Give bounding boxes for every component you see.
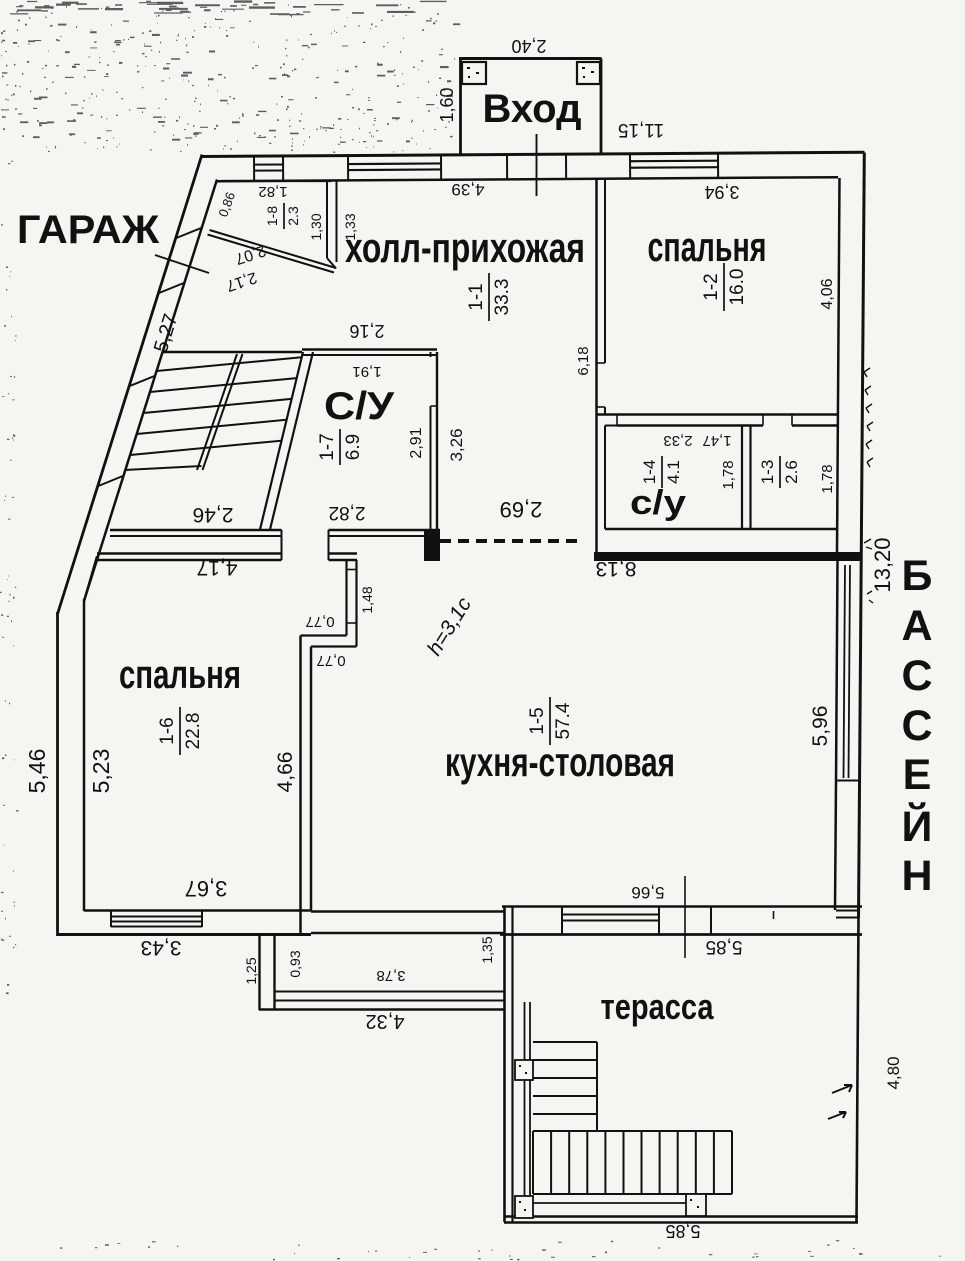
svg-text:С: С (901, 702, 932, 750)
svg-text:2,33: 2,33 (663, 432, 692, 449)
svg-text:4,32: 4,32 (366, 1010, 405, 1032)
svg-text:3,67: 3,67 (185, 876, 228, 901)
svg-text:1,48: 1,48 (359, 586, 375, 613)
svg-text:6,18: 6,18 (575, 346, 592, 375)
svg-text:5,23: 5,23 (88, 749, 114, 794)
svg-text:А: А (901, 602, 932, 650)
svg-text:спальня: спальня (119, 653, 241, 697)
svg-text:1-6: 1-6 (157, 717, 178, 744)
svg-text:1,91: 1,91 (352, 363, 381, 380)
svg-text:6.9: 6.9 (343, 434, 364, 460)
svg-text:11,15: 11,15 (618, 119, 664, 140)
svg-text:Й: Й (902, 802, 933, 851)
svg-text:Е: Е (903, 751, 932, 799)
svg-text:1,25: 1,25 (243, 957, 259, 984)
svg-text:Вход: Вход (483, 87, 582, 131)
svg-text:2,82: 2,82 (329, 502, 366, 523)
svg-text:5,66: 5,66 (631, 883, 664, 902)
svg-text:1,30: 1,30 (308, 213, 324, 240)
svg-text:4,80: 4,80 (884, 1056, 903, 1089)
svg-text:22.8: 22.8 (183, 713, 204, 750)
svg-text:2,16: 2,16 (349, 321, 384, 341)
svg-text:0,77: 0,77 (316, 652, 345, 669)
svg-text:1-5: 1-5 (527, 707, 548, 734)
svg-text:с/у: с/у (630, 485, 686, 522)
svg-text:холл-прихожая: холл-прихожая (345, 224, 585, 271)
svg-text:1,47: 1,47 (702, 432, 731, 449)
svg-text:4,39: 4,39 (451, 180, 484, 199)
svg-text:5,85: 5,85 (665, 1221, 700, 1241)
svg-text:1,78: 1,78 (720, 460, 737, 489)
svg-text:2,69: 2,69 (500, 497, 543, 522)
svg-text:5,46: 5,46 (24, 749, 50, 794)
svg-text:1-2: 1-2 (701, 273, 722, 300)
svg-text:ГАРАЖ: ГАРАЖ (17, 208, 160, 252)
svg-text:57.4: 57.4 (553, 702, 574, 739)
svg-text:1-8: 1-8 (264, 206, 280, 226)
svg-text:2,91: 2,91 (408, 427, 425, 458)
svg-text:5,96: 5,96 (809, 706, 832, 747)
svg-text:3,94: 3,94 (704, 182, 739, 202)
svg-text:С: С (901, 652, 932, 700)
svg-text:3,78: 3,78 (376, 967, 405, 984)
svg-text:спальня: спальня (648, 223, 767, 270)
svg-text:4,66: 4,66 (274, 752, 297, 793)
svg-text:8,13: 8,13 (596, 557, 637, 580)
svg-text:0,77: 0,77 (305, 613, 334, 630)
svg-text:терасса: терасса (601, 986, 715, 1026)
svg-text:2,40: 2,40 (511, 36, 546, 56)
svg-text:1-3: 1-3 (758, 460, 777, 485)
svg-text:13,20: 13,20 (870, 537, 895, 592)
svg-text:1,33: 1,33 (342, 213, 358, 240)
svg-text:Б: Б (902, 552, 933, 600)
svg-text:1,78: 1,78 (819, 464, 836, 493)
svg-text:3,43: 3,43 (141, 936, 182, 959)
svg-text:0,93: 0,93 (287, 950, 303, 977)
svg-text:кухня-столовая: кухня-столовая (445, 740, 675, 785)
svg-text:1-1: 1-1 (466, 283, 487, 310)
svg-text:С/У: С/У (324, 385, 394, 428)
svg-text:2.6: 2.6 (782, 460, 801, 484)
svg-text:1-7: 1-7 (317, 433, 338, 460)
svg-text:1,35: 1,35 (479, 936, 495, 963)
svg-text:4.1: 4.1 (664, 460, 683, 484)
svg-text:1,82: 1,82 (258, 183, 287, 200)
svg-text:16.0: 16.0 (727, 269, 748, 306)
svg-text:2.3: 2.3 (285, 206, 301, 226)
svg-text:4,06: 4,06 (819, 278, 836, 309)
svg-text:3,26: 3,26 (447, 428, 466, 461)
svg-text:4,17: 4,17 (197, 556, 238, 579)
svg-text:1,60: 1,60 (437, 87, 457, 122)
svg-text:2,46: 2,46 (193, 503, 234, 526)
svg-text:Н: Н (901, 852, 932, 900)
svg-text:33.3: 33.3 (492, 279, 513, 316)
svg-text:1-4: 1-4 (640, 460, 659, 485)
svg-text:5,85: 5,85 (706, 936, 743, 957)
